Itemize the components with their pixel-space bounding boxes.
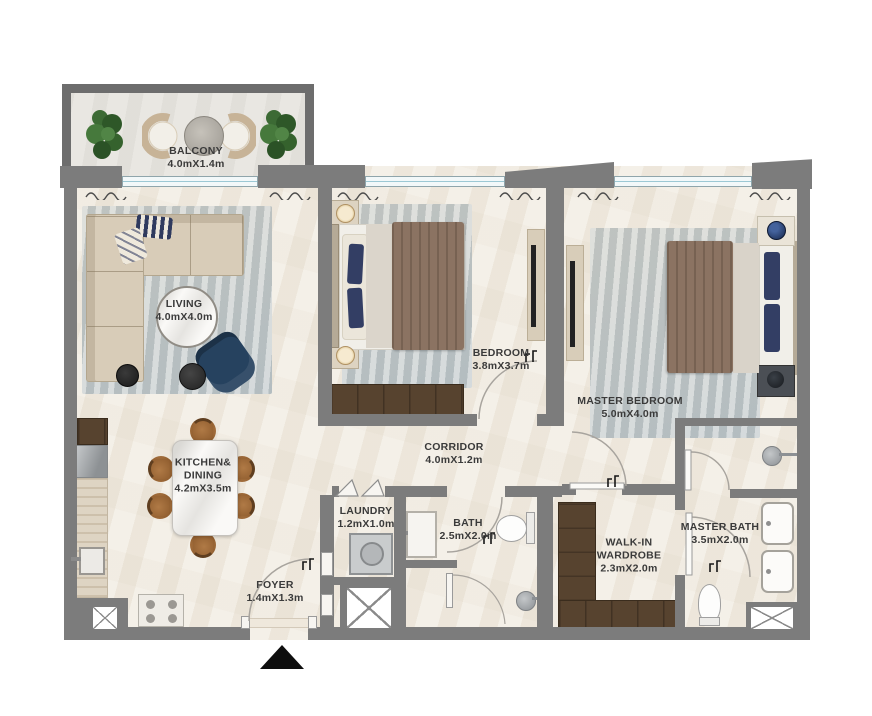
room-label-bedroom: BEDROOM 3.8mX3.7m <box>472 347 529 373</box>
room-label-kitchen-dining: KITCHEN& DINING 4.2mX3.5m <box>174 457 231 496</box>
door-swing-arcs <box>0 0 872 716</box>
room-name: BEDROOM <box>472 347 529 360</box>
room-name: FOYER <box>246 579 303 592</box>
room-name: BALCONY <box>167 145 224 158</box>
room-dims: 4.0mX4.0m <box>155 311 212 324</box>
room-name: CORRIDOR <box>424 441 483 454</box>
room-name: BATH <box>439 517 496 530</box>
room-name: KITCHEN& <box>174 457 231 470</box>
floor-plan: BALCONY 4.0mX1.4m LIVING 4.0mX4.0m BEDRO… <box>0 0 872 716</box>
bifold-door-icon <box>336 480 384 496</box>
room-dims: 4.2mX3.5m <box>174 483 231 496</box>
room-name: LAUNDRY <box>337 505 394 518</box>
room-label-bath: BATH 2.5mX2.0m <box>439 517 496 543</box>
room-name: WALK-IN <box>597 537 661 550</box>
room-dims: 2.5mX2.0m <box>439 530 496 543</box>
room-name: LIVING <box>155 298 212 311</box>
room-label-master-bedroom: MASTER BEDROOM 5.0mX4.0m <box>577 395 683 421</box>
room-name: DINING <box>174 470 231 483</box>
room-name: MASTER BEDROOM <box>577 395 683 408</box>
room-name: MASTER BATH <box>681 521 759 534</box>
room-label-living: LIVING 4.0mX4.0m <box>155 298 212 324</box>
room-dims: 2.3mX2.0m <box>597 563 661 576</box>
room-dims: 4.0mX1.4m <box>167 158 224 171</box>
room-dims: 4.0mX1.2m <box>424 454 483 467</box>
room-dims: 1.2mX1.0m <box>337 518 394 531</box>
room-dims: 5.0mX4.0m <box>577 408 683 421</box>
room-label-foyer: FOYER 1.4mX1.3m <box>246 579 303 605</box>
room-label-master-bath: MASTER BATH 3.5mX2.0m <box>681 521 759 547</box>
room-label-walk-in-wardrobe: WALK-IN WARDROBE 2.3mX2.0m <box>597 537 661 576</box>
room-name: WARDROBE <box>597 550 661 563</box>
room-label-corridor: CORRIDOR 4.0mX1.2m <box>424 441 483 467</box>
room-label-balcony: BALCONY 4.0mX1.4m <box>167 145 224 171</box>
room-dims: 1.4mX1.3m <box>246 592 303 605</box>
room-label-laundry: LAUNDRY 1.2mX1.0m <box>337 505 394 531</box>
room-dims: 3.8mX3.7m <box>472 360 529 373</box>
room-dims: 3.5mX2.0m <box>681 534 759 547</box>
